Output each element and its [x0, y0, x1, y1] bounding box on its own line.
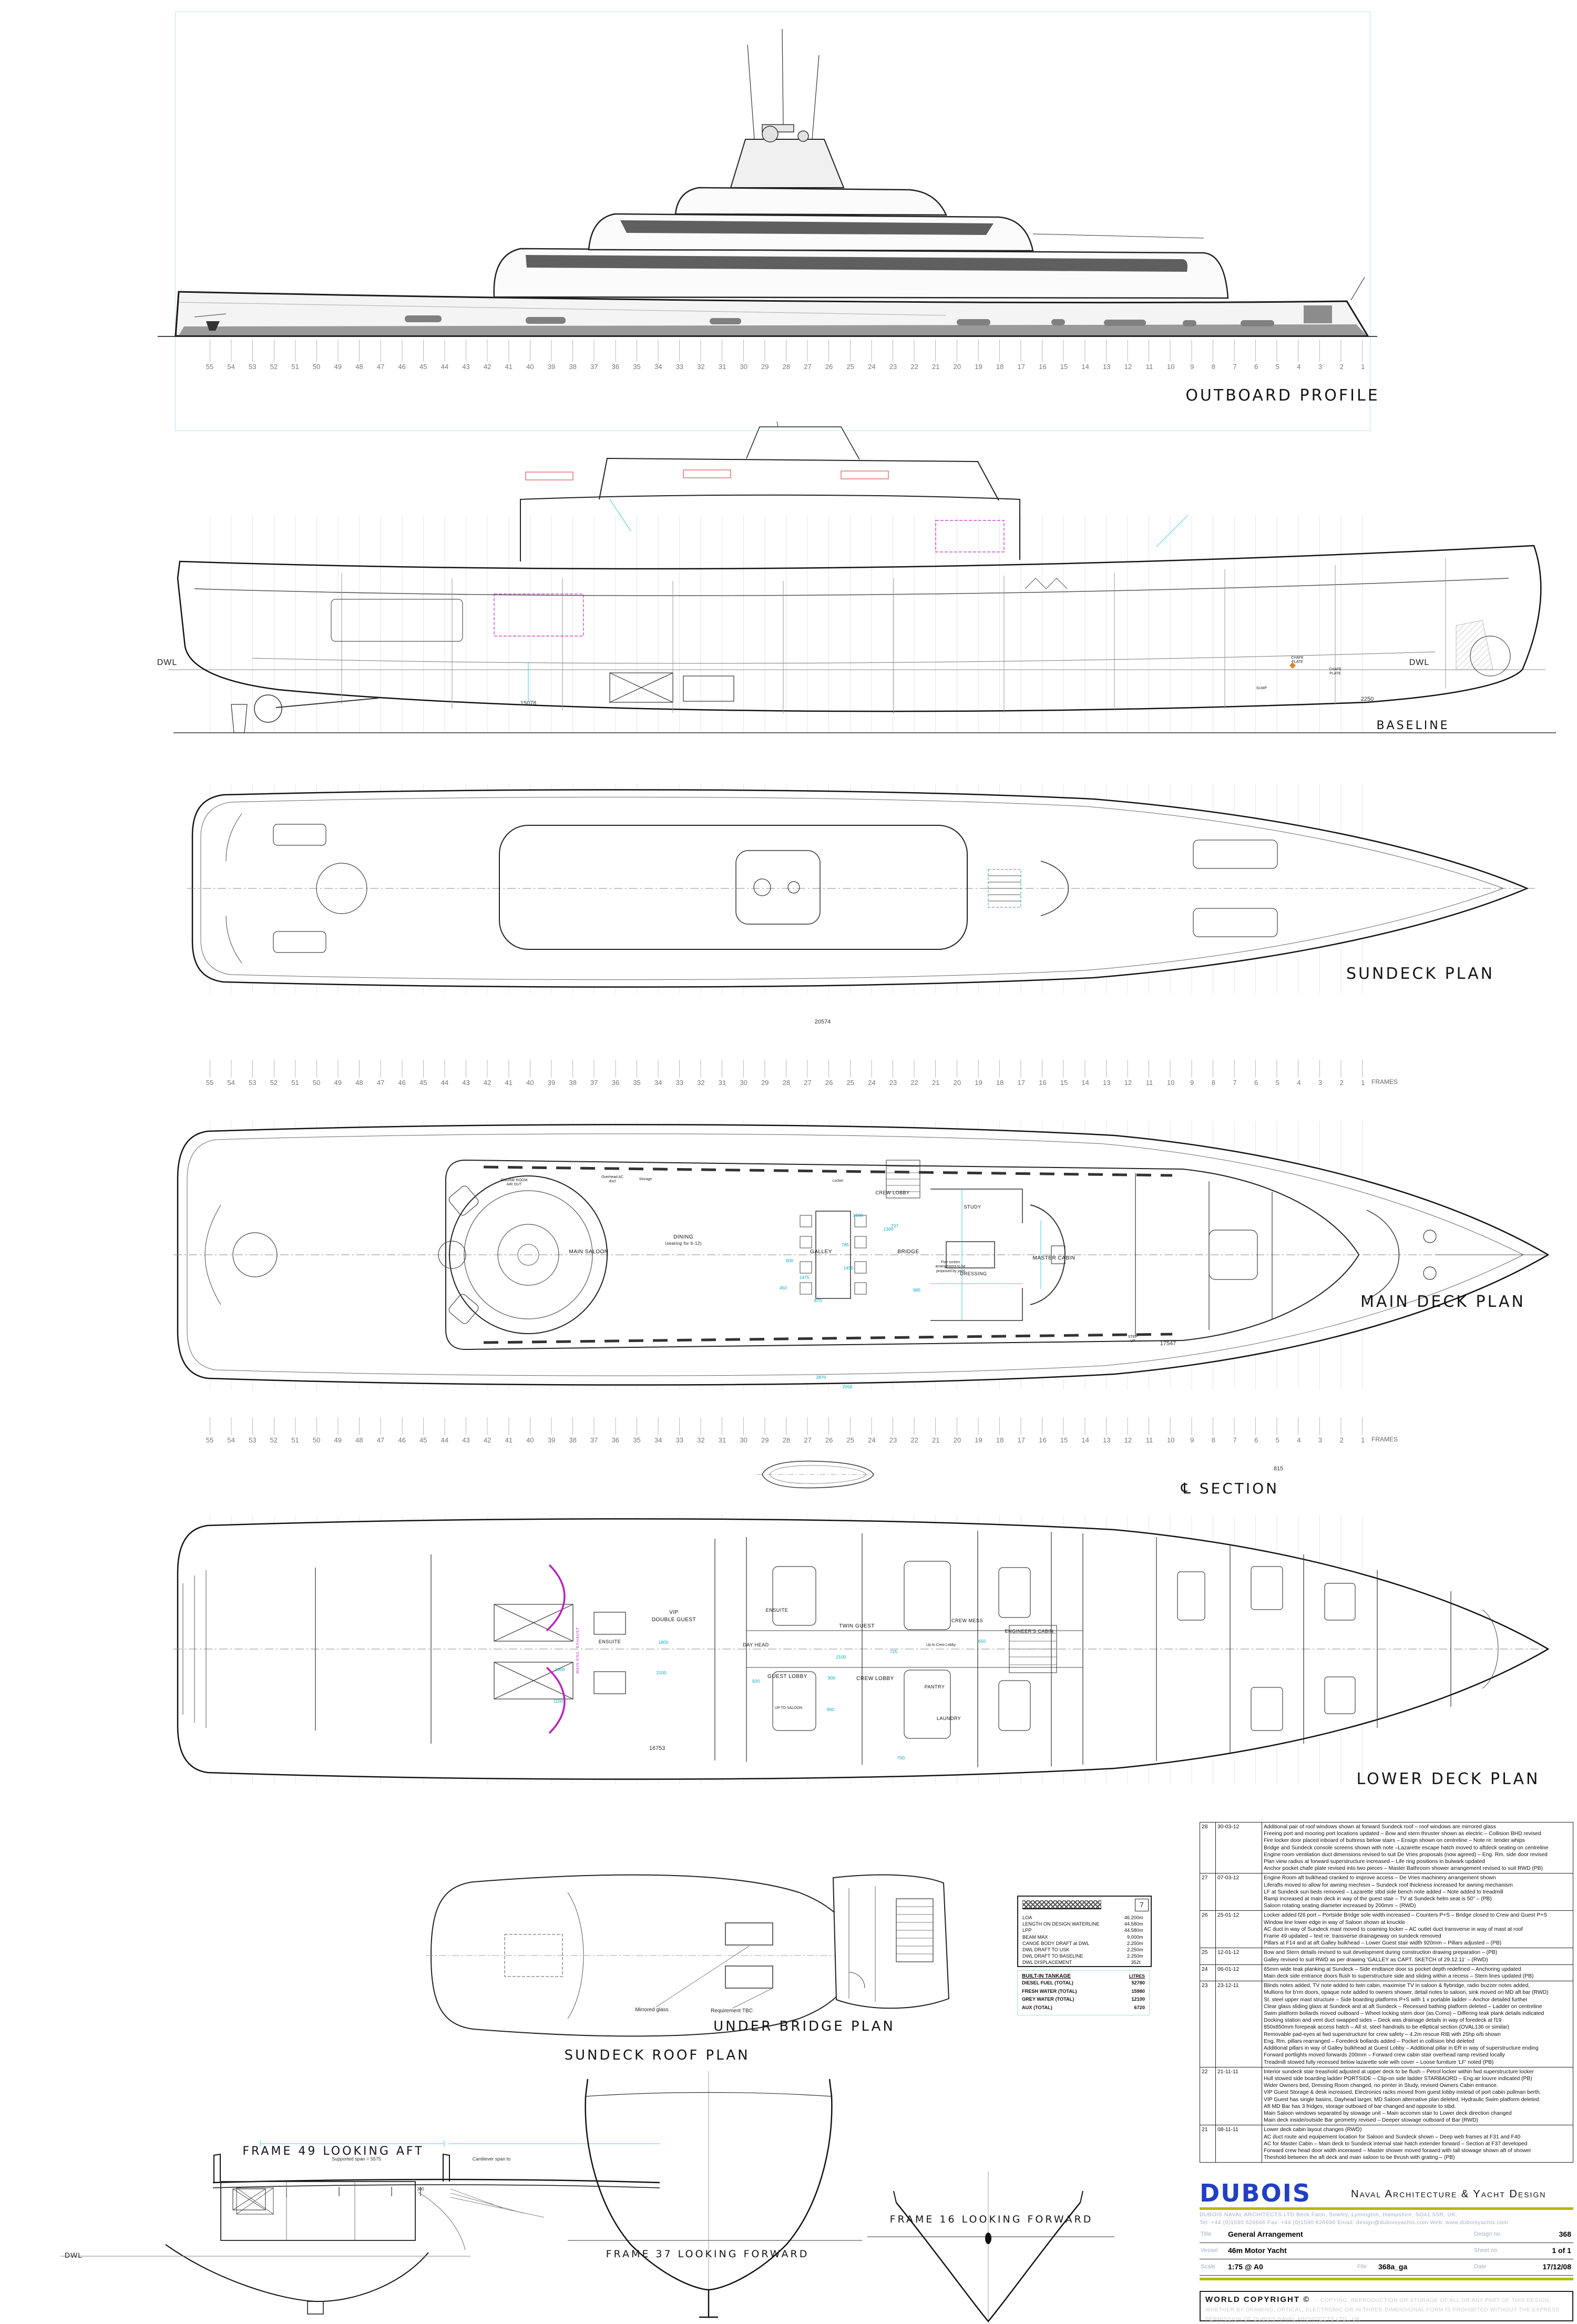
dims-corner-number: 7: [1135, 1899, 1149, 1911]
frame-number: 25: [845, 1079, 856, 1087]
frame-number: 27: [802, 363, 814, 371]
frame-number: 46: [396, 363, 408, 371]
frame-number: 51: [290, 1436, 301, 1444]
frame-number: 14: [1080, 1436, 1091, 1444]
view-label: UNDER BRIDGE PLAN: [713, 2019, 895, 2035]
lower-deck-plan-drawing: [158, 1504, 1556, 1794]
frame-number: 3: [1315, 1436, 1326, 1444]
frame-37-drawing: [568, 2071, 862, 2324]
cyan-dimension-text: 450: [780, 1286, 787, 1291]
frame-number: 29: [759, 363, 771, 371]
frame-number: 41: [503, 1436, 515, 1444]
tankage-row: GREY WATER (TOTAL) 12100: [1022, 1995, 1145, 2004]
frame-number: 12: [1122, 363, 1134, 371]
revision-row: 22 21-11-11 Interior sundeck stair treas…: [1200, 2067, 1573, 2126]
frame-number: 43: [460, 1436, 472, 1444]
tankage-label: FRESH WATER (TOTAL): [1022, 1988, 1121, 1996]
frame-number: 9: [1186, 363, 1198, 371]
note-text: Up to Crew Lobby: [926, 1643, 956, 1647]
frame-number: 29: [759, 1436, 771, 1444]
frame-number: 27: [802, 1079, 814, 1087]
frame-number: 28: [781, 363, 792, 371]
frame-number: 37: [588, 1079, 600, 1087]
tankage-value: 12100: [1121, 1995, 1145, 2004]
frame-number: 11: [1144, 1079, 1155, 1087]
revision-notes: Engine Room aft bulkhead cranked to impr…: [1262, 1873, 1573, 1910]
frame-number: 10: [1165, 1079, 1176, 1087]
frames-caption: FRAMES: [1371, 1436, 1398, 1443]
design-no-value: 368: [1559, 2230, 1571, 2238]
view-label: LOWER DECK PLAN: [1357, 1770, 1540, 1789]
tankage-row: FRESH WATER (TOTAL) 15980: [1022, 1988, 1145, 1996]
inboard-profile-drawing: [158, 421, 1556, 746]
frame-number: 21: [930, 1079, 941, 1087]
dimension-text: Cantilever span to: [473, 2156, 511, 2162]
frame-number: 4: [1293, 1436, 1305, 1444]
note-text: Overhead AC duct: [600, 1175, 624, 1184]
revision-date: 06-01-12: [1216, 1965, 1262, 1981]
stern-section-view: [60, 2176, 476, 2324]
revision-number: 25: [1200, 1948, 1216, 1964]
frame-number: 23: [887, 1079, 899, 1087]
revision-number: 27: [1200, 1873, 1216, 1910]
title-block: DUBOIS Naval Architecture & Yacht Design…: [1200, 2179, 1573, 2281]
design-no-label: Design no.: [1474, 2231, 1502, 2237]
revision-notes: Interior sundeck stair treashold adjuste…: [1262, 2067, 1573, 2125]
frame-number: 38: [567, 1436, 579, 1444]
under-bridge-drawing: [817, 1867, 957, 2020]
frame-number: 7: [1229, 1436, 1241, 1444]
frame-number: 9: [1186, 1436, 1198, 1444]
room-label: ENSUITE: [599, 1639, 621, 1644]
room-label: DINING: [673, 1234, 693, 1241]
dimension-text: Supported span = 5575: [332, 2156, 381, 2162]
revision-number: 21: [1200, 2125, 1216, 2162]
view-label: MAIN DECK PLAN: [1360, 1293, 1525, 1312]
note-text: CHAFE PLATE: [1289, 656, 1305, 665]
section-view: [752, 1456, 878, 1493]
frame-number: 3: [1315, 363, 1326, 371]
frame-number: 35: [631, 1079, 643, 1087]
sheet-no-label: Sheet no.: [1474, 2247, 1499, 2254]
waterline-label: DWL: [157, 658, 178, 668]
revision-notes: 65mm wide teak planking at Sundeck – Sid…: [1262, 1965, 1573, 1981]
frame-number: 10: [1165, 1436, 1176, 1444]
vessel-value: 46m Motor Yacht: [1228, 2246, 1287, 2255]
tankage-title: BUILT-IN TANKAGE: [1022, 1973, 1113, 1979]
sundeck-plan-view: [168, 777, 1545, 1000]
frame-number: 16: [1037, 1436, 1048, 1444]
outboard-profile-view: [158, 8, 1377, 376]
view-label: FRAME 16 LOOKING FORWARD: [890, 2214, 1093, 2226]
frame-16-view: [867, 2171, 1114, 2324]
frame-number: 32: [695, 1079, 706, 1087]
frame-number: 21: [930, 1436, 941, 1444]
revision-date: 12-01-12: [1216, 1948, 1262, 1964]
room-label: CREW MESS: [951, 1618, 983, 1623]
view-label: FRAME 37 LOOKING FORWARD: [606, 2249, 810, 2260]
frame-number: 54: [226, 363, 237, 371]
frames-caption: FRAMES: [1371, 1079, 1398, 1086]
maindeck-frame-ticks: [210, 1417, 1363, 1435]
frame-number: 45: [417, 1436, 429, 1444]
frame-number: 13: [1101, 363, 1112, 371]
dimension-row: LPP 44.580 m: [1022, 1927, 1146, 1933]
tankage-label: GREY WATER (TOTAL): [1022, 1995, 1121, 2004]
main-deck-plan-view: [158, 1110, 1556, 1399]
frame-number: 53: [247, 1436, 258, 1444]
dimension-label: LENGTH ON DESIGN WATERLINE: [1022, 1921, 1112, 1927]
vessel-label: Vessel: [1201, 2247, 1217, 2254]
frame-number: 49: [332, 1079, 344, 1087]
dimension-row: DWL DRAFT TO BASELINE 2.250 m: [1022, 1953, 1146, 1959]
frame-number: 4: [1293, 363, 1305, 371]
stern-section-drawing: [60, 2176, 476, 2324]
frame-number: 33: [674, 1079, 685, 1087]
cyan-dimension-text: 650: [978, 1639, 986, 1644]
cyan-dimension-text: 600: [786, 1258, 793, 1264]
frame-number: 55: [204, 1436, 216, 1444]
file-label: File: [1357, 2264, 1367, 2270]
frame-number: 54: [226, 1079, 237, 1087]
revision-row: 28 30-03-12 Additional pair of roof wind…: [1200, 1823, 1573, 1873]
frame-number: 43: [460, 363, 472, 371]
room-label: GUEST LOBBY: [767, 1674, 807, 1680]
frame-number: 36: [610, 1436, 621, 1444]
frame-number: 40: [524, 1079, 536, 1087]
dimension-value: 44.580: [1112, 1927, 1139, 1933]
frame-number: 47: [375, 1436, 386, 1444]
dimension-row: BEAM MAX 9.000 m: [1022, 1934, 1146, 1940]
dimension-value: 352: [1112, 1959, 1139, 1965]
sundeck-frame-ticks: [210, 1060, 1363, 1078]
frame-number: 54: [226, 1436, 237, 1444]
cyan-dimension-text: 725: [890, 1650, 897, 1655]
dimension-value: 2.250: [1112, 1940, 1139, 1947]
tankage-value: 6720: [1121, 2004, 1145, 2012]
scale-value: 1:75 @ A0: [1228, 2262, 1263, 2271]
frame-number: 40: [524, 1436, 536, 1444]
dimension-unit: m: [1139, 1915, 1146, 1921]
frame-number: 5: [1272, 1436, 1283, 1444]
revision-row: 26 25-01-12 Locker added f26 port – Port…: [1200, 1911, 1573, 1948]
dimension-row: CANOE BODY DRAFT at DWL 2.250 m: [1022, 1940, 1146, 1947]
tankage-label: AUX (TOTAL): [1022, 2004, 1121, 2012]
frame-number: 48: [353, 1079, 365, 1087]
frame-number: 55: [204, 363, 216, 371]
revision-notes: Lower deck cabin layout changes (RWD)AC …: [1262, 2125, 1573, 2162]
note-text: SUMP: [1256, 687, 1267, 691]
copyright-box: WORLD COPYRIGHT ©– COPYING, REPRODUCTION…: [1200, 2291, 1573, 2321]
frame-number: 36: [610, 1079, 621, 1087]
revision-notes: Bow and Stern details revised to suit de…: [1262, 1948, 1573, 1964]
frame-number: 6: [1251, 1436, 1262, 1444]
cyan-dimension-text: 1800: [659, 1640, 669, 1645]
frame-number: 6: [1251, 1079, 1262, 1087]
cyan-dimension-text: 2100: [657, 1671, 667, 1676]
frame-number: 30: [738, 1079, 750, 1087]
frame-16-drawing: [867, 2171, 1114, 2324]
frame-number: 16: [1037, 1079, 1048, 1087]
frame-number: 21: [930, 363, 941, 371]
company-tagline: Naval Architecture & Yacht Design: [1351, 2188, 1546, 2200]
revision-date: 08-11-11: [1216, 2125, 1262, 2162]
frame-number: 44: [439, 1436, 450, 1444]
frame-number: 32: [695, 1436, 706, 1444]
frame-number: 24: [866, 363, 877, 371]
room-label: VIP: [669, 1610, 679, 1616]
frame-number: 13: [1101, 1079, 1112, 1087]
frame-number: 32: [695, 363, 706, 371]
sundeck-plan-drawing: [168, 777, 1545, 1000]
frame-number: 39: [546, 363, 557, 371]
frame-number: 6: [1251, 363, 1262, 371]
frame-number: 53: [247, 1079, 258, 1087]
room-label: DOUBLE GUEST: [652, 1617, 696, 1623]
frame-number: 33: [674, 1436, 685, 1444]
file-value: 368a_ga: [1378, 2262, 1407, 2271]
company-address: DUBOIS NAVAL ARCHITECTS LTD Beck Farm, S…: [1200, 2211, 1573, 2219]
dimension-label: LOA: [1022, 1915, 1112, 1921]
revision-number: 22: [1200, 2067, 1216, 2125]
room-label: STUDY: [964, 1204, 981, 1210]
frame-number: 5: [1272, 363, 1283, 371]
frame-number: 31: [716, 363, 728, 371]
dimension-value: 2.250: [1112, 1953, 1139, 1959]
dimension-label: DWL DRAFT TO USK: [1022, 1947, 1112, 1953]
dimension-unit: m: [1139, 1947, 1146, 1953]
main-deck-plan-drawing: [158, 1110, 1556, 1399]
frame-number: 11: [1144, 1436, 1155, 1444]
cyan-dimension-text: 2870: [816, 1375, 826, 1380]
dimension-text: 17547: [1160, 1340, 1176, 1347]
frame-number: 34: [652, 1079, 664, 1087]
separator-bar: [1200, 2278, 1573, 2280]
scale-row: Scale 1:75 @ A0 File 368a_ga Date 17/12/…: [1200, 2259, 1573, 2276]
dimension-text: 300: [417, 2187, 424, 2192]
frame-number: 8: [1207, 1079, 1219, 1087]
dimension-row: DWL DISPLACEMENT 352 t: [1022, 1959, 1146, 1965]
cyan-dimension-text: 785: [842, 1243, 849, 1248]
title-row: Title General Arrangement Design no. 368: [1200, 2227, 1573, 2243]
inboard-profile-view: [158, 421, 1556, 746]
frame-number: 30: [738, 363, 750, 371]
waterline-label: DWL: [65, 2251, 83, 2259]
frame-number: 42: [482, 1436, 493, 1444]
frame-number: 51: [290, 363, 301, 371]
room-label: DRESSING: [960, 1271, 987, 1276]
cyan-dimension-text: 3100: [853, 1213, 863, 1219]
principal-dimensions-table: 7 LOA 46.200 m LENGTH ON DESIGN WATERLIN…: [1017, 1896, 1152, 1967]
revision-date: 25-01-12: [1216, 1911, 1262, 1948]
cyan-dimension-text: 2100: [836, 1655, 846, 1660]
frame-number: 39: [546, 1436, 557, 1444]
frame-number: 55: [204, 1079, 216, 1087]
frame-number: 17: [1016, 363, 1027, 371]
frame-number: 5: [1272, 1079, 1283, 1087]
drawing-title: General Arrangement: [1228, 2230, 1303, 2238]
cyan-dimension-text: 2050: [843, 1385, 853, 1390]
profile-frame-ruler: 5554535251504948474645444342414039383736…: [204, 363, 1369, 371]
tankage-row: DIESEL FUEL (TOTAL) 52780: [1022, 1979, 1145, 1988]
dimension-label: BEAM MAX: [1022, 1934, 1112, 1940]
frame-number: 48: [353, 363, 365, 371]
frame-number: 25: [845, 1436, 856, 1444]
tankage-table: BUILT-IN TANKAGE LITRES DIESEL FUEL (TOT…: [1017, 1970, 1150, 2015]
frame-number: 36: [610, 363, 621, 371]
tankage-row: AUX (TOTAL) 6720: [1022, 2004, 1145, 2012]
frame-number: 38: [567, 1079, 579, 1087]
frame-number: 13: [1101, 1436, 1112, 1444]
frame-number: 25: [845, 363, 856, 371]
frame-number: 18: [994, 1436, 1006, 1444]
frame-number: 10: [1165, 363, 1176, 371]
frame-number: 33: [674, 363, 685, 371]
revision-notes: Blinds notes added, TV note added to twi…: [1262, 1981, 1573, 2066]
frame-number: 16: [1037, 363, 1048, 371]
sheet-no-value: 1 of 1: [1552, 2246, 1571, 2255]
room-label: (seating for 6-12): [665, 1241, 702, 1246]
room-label: LAUNDRY: [937, 1716, 961, 1721]
frame-number: 31: [716, 1436, 728, 1444]
frame-number: 22: [909, 363, 920, 371]
frame-number: 53: [247, 363, 258, 371]
room-label: TWIN GUEST: [839, 1623, 875, 1630]
room-label: ENSUITE: [766, 1608, 788, 1613]
frame-number: 15: [1058, 1079, 1070, 1087]
frame-number: 46: [396, 1436, 408, 1444]
date-value: 17/12/08: [1543, 2262, 1572, 2271]
dimension-text: 20574: [815, 1019, 831, 1026]
outboard-profile-drawing: [158, 8, 1377, 376]
maindeck-frame-ruler: 5554535251504948474645444342414039383736…: [204, 1436, 1369, 1444]
frame-number: 52: [268, 363, 280, 371]
date-label: Date: [1474, 2264, 1486, 2270]
view-label: OUTBOARD PROFILE: [1185, 387, 1379, 405]
frame-number: 44: [439, 363, 450, 371]
scale-label: Scale: [1201, 2264, 1215, 2270]
frame-number: 35: [631, 1436, 643, 1444]
waterline-label: DWL: [1409, 658, 1430, 668]
revision-date: 30-03-12: [1216, 1823, 1262, 1873]
frame-number: 31: [716, 1079, 728, 1087]
room-label: PANTRY: [925, 1684, 945, 1690]
frame-number: 50: [311, 1079, 322, 1087]
revision-date: 23-12-11: [1216, 1981, 1262, 2066]
cyan-dimension-text: 920: [752, 1679, 760, 1684]
revision-number: 24: [1200, 1965, 1216, 1981]
frame-number: 11: [1144, 363, 1155, 371]
frame-number: 43: [460, 1079, 472, 1087]
frame-number: 19: [973, 1079, 985, 1087]
frame-number: 7: [1229, 1079, 1241, 1087]
frame-number: 15: [1058, 1436, 1070, 1444]
room-label: CREW LOBBY: [875, 1190, 909, 1195]
main-engine-exhaust-label: MAIN ENG. EXHAUST: [576, 1627, 580, 1674]
title-label: Title: [1201, 2231, 1211, 2237]
frame-number: 20: [951, 1079, 963, 1087]
room-label: MAIN SALOON: [569, 1249, 609, 1255]
dimension-unit: m: [1139, 1921, 1146, 1927]
cyan-dimension-text: 985: [913, 1288, 920, 1293]
frame-number: 23: [887, 363, 899, 371]
frame-number: 51: [290, 1079, 301, 1087]
tankage-unit-header: LITRES: [1113, 1973, 1145, 1979]
dimension-label: LPP: [1022, 1927, 1112, 1933]
frame-number: 20: [951, 363, 963, 371]
dimension-row: DWL DRAFT TO USK 2.250 m: [1022, 1947, 1146, 1953]
note-text: Locker: [832, 1179, 843, 1183]
revision-notes: Locker added f26 port – Portside Bridge …: [1262, 1911, 1573, 1948]
frame-number: 23: [887, 1436, 899, 1444]
room-label: GALLEY: [810, 1249, 832, 1255]
frame-number: 7: [1229, 363, 1241, 371]
cyan-dimension-text: 1475: [800, 1275, 810, 1281]
frame-number: 4: [1293, 1079, 1305, 1087]
note-text: Storage: [639, 1178, 652, 1182]
frame-number: 14: [1080, 1079, 1091, 1087]
frame-number: 37: [588, 1436, 600, 1444]
note-text: CHAFE PLATE: [1327, 668, 1343, 677]
revision-row: 21 08-11-11 Lower deck cabin layout chan…: [1200, 2125, 1573, 2162]
view-label: SUNDECK ROOF PLAN: [564, 2048, 750, 2064]
drawing-sheet: 5554535251504948474645444342414039383736…: [0, 0, 1577, 2324]
dimension-unit: m: [1139, 1934, 1146, 1940]
frame-number: 2: [1336, 1436, 1347, 1444]
note-text: STEP UP: [1127, 1335, 1139, 1344]
revision-notes: Additional pair of roof windows shown at…: [1262, 1823, 1573, 1873]
frame-number: 44: [439, 1079, 450, 1087]
frame-number: 29: [759, 1079, 771, 1087]
profile-frame-ticks: [210, 340, 1363, 362]
redacted-vessel-name: [1022, 1900, 1101, 1909]
under-bridge-plan-view: [817, 1867, 957, 2020]
frame-number: 17: [1016, 1079, 1027, 1087]
dimension-label: DWL DISPLACEMENT: [1022, 1959, 1112, 1965]
cyan-dimension-text: 900: [828, 1676, 835, 1681]
frame-number: 18: [994, 363, 1006, 371]
frame-number: 8: [1207, 363, 1219, 371]
frame-number: 52: [268, 1436, 280, 1444]
view-label: ℄ SECTION: [1181, 1480, 1279, 1497]
frame-number: 37: [588, 363, 600, 371]
frame-number: 18: [994, 1079, 1006, 1087]
dimension-value: 46.200: [1112, 1915, 1139, 1921]
view-label: SUNDECK PLAN: [1346, 965, 1494, 984]
sundeck-frame-ruler: 5554535251504948474645444342414039383736…: [204, 1079, 1369, 1087]
frame-number: 26: [823, 1436, 835, 1444]
dimension-text: 16753: [649, 1745, 665, 1752]
frame-number: 30: [738, 1436, 750, 1444]
frame-number: 41: [503, 363, 515, 371]
dimension-text: 2250: [1361, 696, 1374, 703]
frame-number: 27: [802, 1436, 814, 1444]
revision-table: 28 30-03-12 Additional pair of roof wind…: [1200, 1822, 1573, 2163]
tankage-value: 15980: [1121, 1988, 1145, 1996]
frame-number: 24: [866, 1436, 877, 1444]
frame-number: 1: [1357, 1079, 1369, 1087]
frame-number: 42: [482, 1079, 493, 1087]
cyan-dimension-text: 870: [814, 1298, 822, 1304]
frame-number: 49: [332, 1436, 344, 1444]
revision-row: 24 06-01-12 65mm wide teak planking at S…: [1200, 1965, 1573, 1981]
frame-number: 2: [1336, 363, 1347, 371]
frame-number: 49: [332, 363, 344, 371]
frame-number: 19: [973, 1436, 985, 1444]
company-contact: Tel: +44 (0)1590 626666 Fax: +44 (0)1590…: [1200, 2219, 1573, 2227]
frame-number: 35: [631, 363, 643, 371]
frame-number: 1: [1357, 363, 1369, 371]
